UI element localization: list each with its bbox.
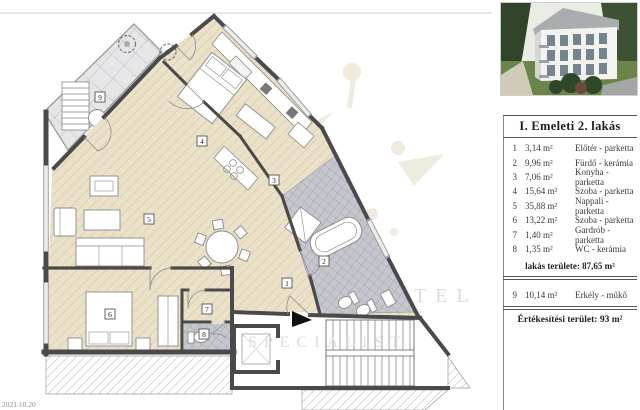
svg-text:8: 8	[202, 330, 206, 339]
room-tag-5: 5	[144, 214, 154, 224]
page-title: I. Emeleti 2. lakás	[503, 115, 637, 138]
svg-text:9: 9	[98, 93, 102, 102]
terrace-bench	[62, 82, 89, 130]
svg-text:5: 5	[147, 215, 151, 224]
room-tag-1: 1	[282, 278, 292, 288]
info-panel: I. Emeleti 2. lakás 13,14 m²Előtér - par…	[497, 0, 640, 410]
divider-line	[503, 309, 637, 310]
svg-text:3: 3	[272, 176, 276, 185]
date-stamp: 2021.10.20	[2, 400, 36, 409]
photo-side	[535, 30, 541, 81]
svg-text:1: 1	[285, 279, 289, 288]
page: 1 2 3 4 5 6 7 8 9 TEL SPECIALIST 2021.10…	[0, 0, 640, 410]
table-row: 81,35 m²WC - kerámia	[503, 242, 637, 256]
room-tag-4: 4	[197, 136, 207, 146]
svg-text:4: 4	[200, 137, 204, 146]
svg-text:SPECIALIST: SPECIALIST	[248, 334, 407, 351]
svg-text:6: 6	[108, 310, 112, 319]
room-table: 13,14 m²Előtér - parketta 29,96 m²Fürdő …	[503, 141, 637, 256]
table-row: 37,06 m²Konyha - parketta	[503, 170, 637, 184]
total-area: Értékesítési terület: 93 m²	[503, 315, 637, 325]
building-photo	[500, 2, 638, 96]
photo-red-bush	[575, 82, 587, 94]
table-row: 13,14 m²Előtér - parketta	[503, 141, 637, 155]
staircase	[326, 320, 414, 386]
subtotal-area: lakás területe: 87,65 m²	[503, 261, 637, 271]
svg-text:TEL: TEL	[414, 285, 478, 307]
balcony-row: 910,14 m²Erkély - műkő	[503, 287, 637, 303]
divider-line	[503, 306, 637, 307]
room-tag-2: 2	[319, 256, 329, 266]
room-tag-8: 8	[199, 329, 209, 339]
room-tag-6: 6	[105, 309, 115, 319]
floor-plan: 1 2 3 4 5 6 7 8 9 TEL SPECIALIST 2021.10…	[0, 0, 497, 410]
room-tag-3: 3	[269, 175, 279, 185]
divider-line	[503, 276, 637, 277]
room-tag-9: 9	[95, 92, 105, 102]
table-row: 71,40 m²Gardrób - parketta	[503, 227, 637, 241]
svg-text:2: 2	[322, 257, 326, 266]
table-row: 535,88 m²Nappali - parketta	[503, 199, 637, 213]
room-tag-7: 7	[202, 304, 212, 314]
divider-line	[503, 279, 637, 280]
svg-text:7: 7	[205, 305, 209, 314]
